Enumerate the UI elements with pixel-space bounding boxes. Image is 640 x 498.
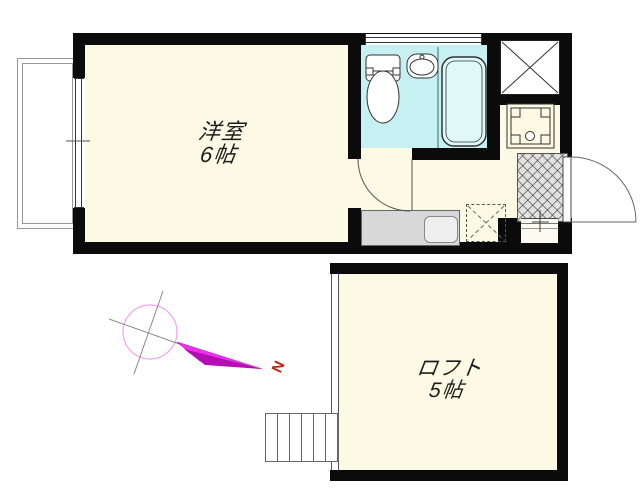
entrance-step [521, 218, 558, 243]
entrance-genkan [517, 153, 568, 222]
loft-wall-top [330, 263, 568, 274]
north-arrow-icon [177, 342, 262, 369]
north-label: N [267, 358, 287, 375]
kitchen-counter [361, 210, 460, 246]
main-room-label: 洋室 6帖 [157, 120, 283, 166]
compass-icon [109, 291, 185, 374]
floor-plan: 洋室 6帖 ロフト 5帖 N [0, 0, 640, 498]
wall-below-closet [500, 95, 560, 105]
bathroom-floor [361, 45, 487, 148]
kitchen-sink [424, 216, 458, 243]
wall-room-bath [348, 33, 361, 159]
loft-name: ロフト [388, 358, 511, 380]
balcony-inner-line [22, 63, 73, 224]
loft-size: 5帖 [385, 380, 508, 402]
loft-wall-right [557, 263, 568, 481]
wall-right-stub [558, 218, 572, 254]
wall-right-upper [560, 33, 572, 157]
window-main [74, 78, 84, 208]
loft-label: ロフト 5帖 [385, 358, 511, 402]
main-room-size: 6帖 [157, 143, 280, 166]
balcony [17, 58, 78, 229]
loft-wall-bottom [330, 470, 568, 481]
wall-left-upper [73, 33, 85, 78]
entrance-door [563, 157, 636, 222]
closet-crossbox [500, 40, 560, 95]
wall-bottom [73, 242, 572, 254]
wall-bath-right [487, 33, 500, 160]
ladder-icon [265, 413, 339, 462]
wall-room-kitchen-stub [348, 208, 361, 254]
main-room-name: 洋室 [160, 120, 283, 143]
window-bath [365, 34, 482, 45]
refrigerator-space [466, 204, 506, 242]
